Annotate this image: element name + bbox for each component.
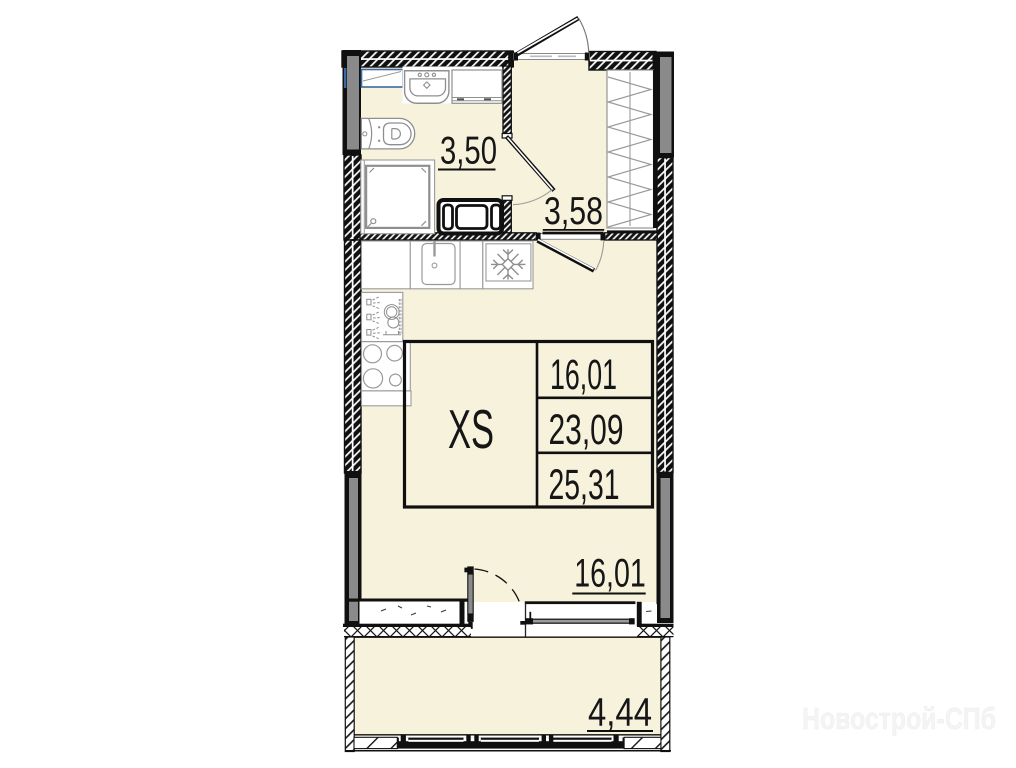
svg-text:Новострой-СПб: Новострой-СПб: [802, 702, 996, 736]
svg-text:16,01: 16,01: [550, 352, 617, 399]
svg-text:16,01: 16,01: [574, 552, 646, 596]
svg-text:23,09: 23,09: [549, 407, 624, 454]
svg-text:XS: XS: [448, 398, 494, 460]
svg-text:25,31: 25,31: [549, 462, 620, 509]
svg-text:3,50: 3,50: [440, 130, 497, 173]
svg-text:4,44: 4,44: [588, 691, 652, 735]
svg-text:3,58: 3,58: [544, 190, 603, 233]
